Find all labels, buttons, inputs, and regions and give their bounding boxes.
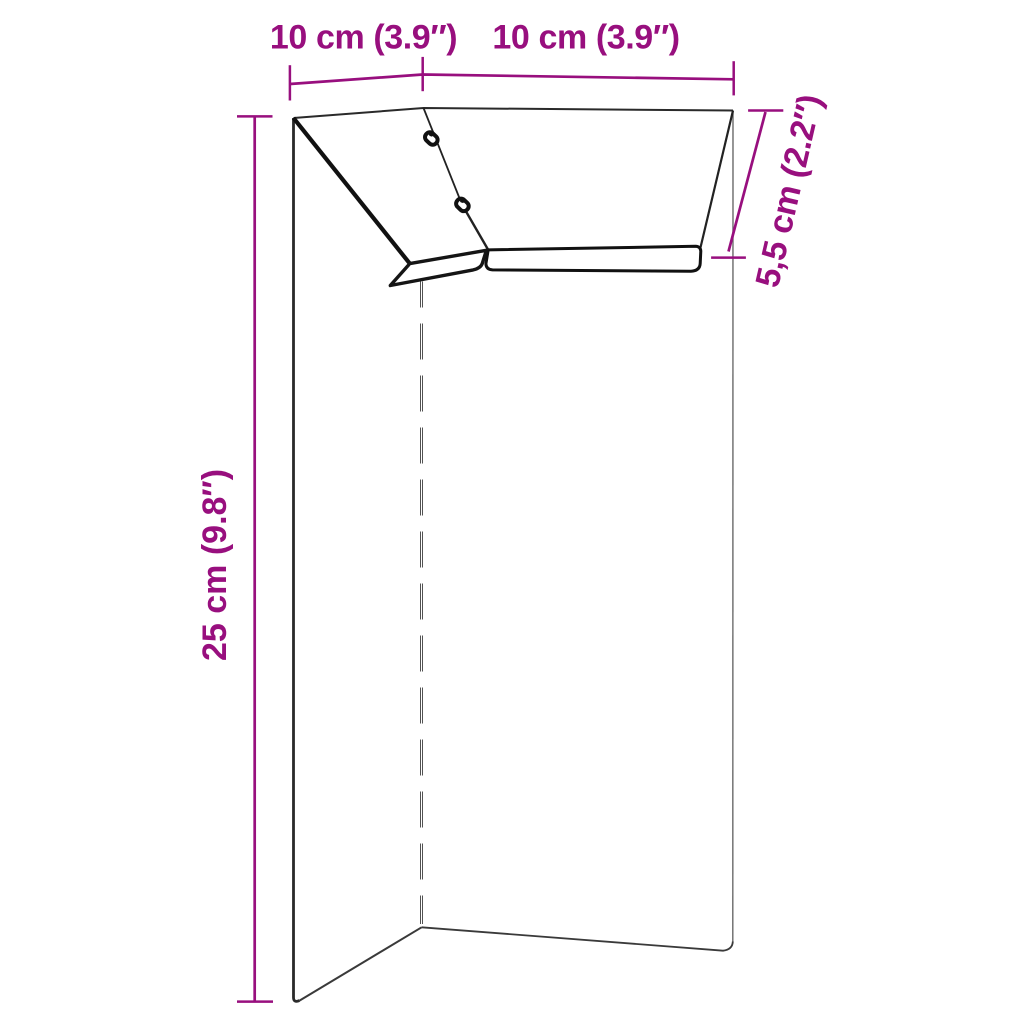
svg-text:25 cm (9.8″): 25 cm (9.8″)	[196, 469, 234, 661]
svg-text:10 cm (3.9″): 10 cm (3.9″)	[270, 19, 457, 57]
svg-text:10 cm (3.9″): 10 cm (3.9″)	[492, 19, 679, 57]
svg-text:5,5 cm (2.2″): 5,5 cm (2.2″)	[748, 91, 829, 291]
